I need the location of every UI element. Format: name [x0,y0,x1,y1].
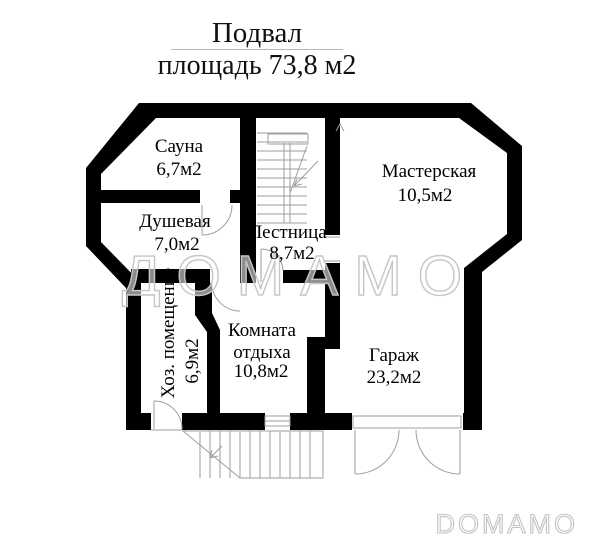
room-label-garage: Гараж [334,345,454,367]
wall-workshop-left-upper [325,118,340,235]
room-area-lounge: 10,8м2 [201,361,321,383]
garage-door-left-leaf [355,430,399,474]
floor-plan-svg: ДОМАМО DOMAMO [0,0,600,544]
plan-subtitle: площадь 73,8 м2 [107,51,407,81]
room-label-sauna: Сауна [119,136,239,158]
opening-exterior-door [151,412,182,431]
room-label-workshop: Мастерская [369,161,489,183]
brand-logo: DOMAMO [436,509,579,539]
plan-title: Подвал [107,18,407,48]
title-block: Подвал площадь 73,8 м2 [107,18,407,81]
exterior-stairs-outline [183,431,323,478]
room-label-stairs: Лестница [228,222,348,244]
room-label-utility: Хоз. помещение [158,258,180,408]
room-label-lounge: Комната отдыха [207,320,317,364]
room-area-sauna: 6,7м2 [119,159,239,181]
room-area-stairs: 8,7м2 [232,243,352,265]
wall-sauna-shower-left [101,190,200,203]
garage-door-right-leaf [416,430,460,474]
room-label-shower: Душевая [115,211,235,233]
wall-sauna-shower-stub [230,190,240,203]
room-area-garage: 23,2м2 [334,367,454,389]
exterior-stairs-treads [200,431,310,478]
staircase-treads [257,133,307,223]
room-area-shower: 7,0м2 [117,234,237,256]
room-area-workshop: 10,5м2 [365,185,485,207]
floor-plan-page: Подвал площадь 73,8 м2 [0,0,600,544]
